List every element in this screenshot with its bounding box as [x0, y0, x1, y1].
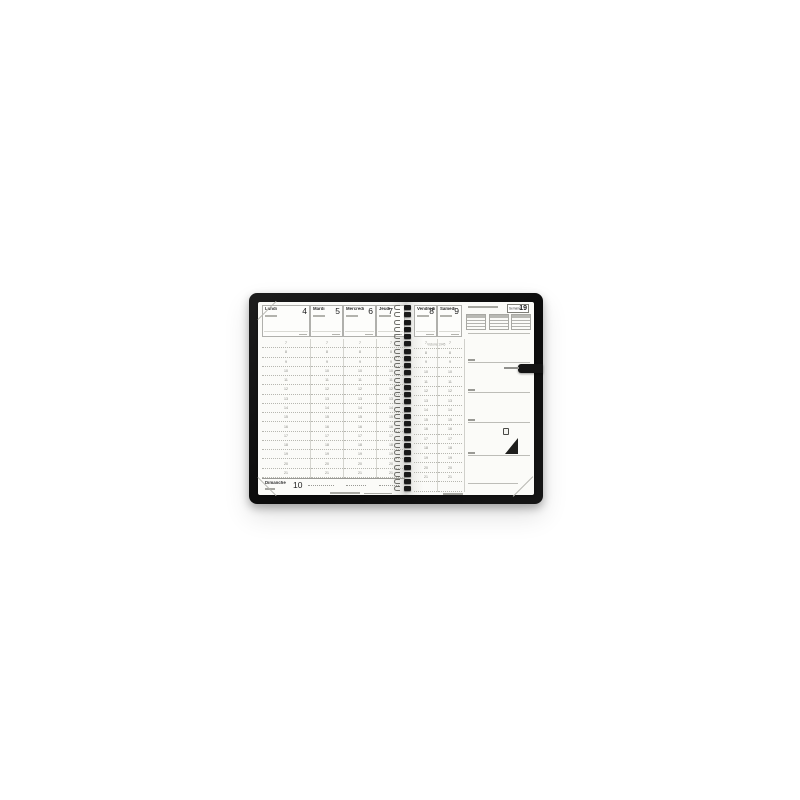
product-photo: Lundi 4 Mardi 5 Mercredi 6	[0, 0, 800, 800]
hour-label: 12	[284, 388, 288, 392]
hour-row: 20	[262, 459, 310, 468]
hour-label: 15	[325, 416, 329, 420]
hour-label: 11	[424, 380, 428, 384]
hour-row: 8	[344, 348, 376, 357]
spiral-wire-hook	[394, 465, 400, 470]
hour-label: 9	[449, 361, 451, 365]
spiral-loop	[404, 465, 411, 470]
hour-label: 12	[325, 388, 329, 392]
hour-row: 19	[311, 450, 343, 459]
hour-label: 9	[425, 361, 427, 365]
header-total-text	[332, 334, 340, 336]
notes-line	[468, 422, 530, 423]
hour-label: 18	[358, 443, 362, 447]
left-page: Lundi 4 Mardi 5 Mercredi 6	[258, 302, 405, 495]
hour-label: 8	[449, 351, 451, 355]
notes-section: Semaine 19	[466, 302, 532, 495]
hour-row: 16	[262, 422, 310, 431]
hour-label: 17	[325, 434, 329, 438]
sunday-row: Dimanche 10	[262, 478, 405, 492]
hour-row: 19	[438, 454, 462, 464]
day-header-saturday: Samedi 9	[437, 305, 462, 337]
hour-row: 8	[262, 348, 310, 357]
spiral-loop	[404, 399, 411, 404]
hour-label: 17	[358, 434, 362, 438]
spiral-wire-hook	[394, 312, 400, 317]
spiral-loop	[404, 312, 411, 317]
right-hour-grid: 7891011121314151617181920217891011121314…	[414, 339, 462, 492]
footer-text	[330, 492, 360, 494]
spiral-loop	[404, 392, 411, 397]
hour-label: 7	[326, 341, 328, 345]
hour-label: 13	[424, 399, 428, 403]
hour-label: 15	[424, 418, 428, 422]
bookmark-tail	[504, 367, 519, 369]
mini-calendar	[489, 314, 509, 330]
notes-label-text	[468, 419, 475, 421]
spiral-wire-hook	[394, 399, 400, 404]
spiral-wire-hook	[394, 428, 400, 433]
saint-name-text	[265, 315, 277, 317]
notes-label-text	[468, 389, 475, 391]
spiral-loop	[404, 479, 411, 484]
hour-label: 9	[285, 360, 287, 364]
day-date: 4	[302, 306, 307, 316]
hour-label: 19	[424, 456, 428, 460]
hour-row: 14	[344, 404, 376, 413]
hour-label: 10	[284, 369, 288, 373]
hour-row: 9	[311, 358, 343, 367]
hour-label: 20	[358, 462, 362, 466]
hour-row: 18	[262, 441, 310, 450]
hour-label: 14	[284, 406, 288, 410]
holiday-note: Victoire 1945	[416, 343, 457, 346]
hour-row: 17	[344, 432, 376, 441]
spiral-wire-hook	[394, 443, 400, 448]
spiral-wire-hook	[394, 356, 400, 361]
day-hour-column: 789101112131415161718192021	[343, 339, 376, 478]
spiral-wire-hook	[394, 392, 400, 397]
hour-row: 13	[344, 395, 376, 404]
notes-label-text	[468, 452, 475, 454]
hour-label: 16	[325, 425, 329, 429]
day-hour-column: 789101112131415161718192021	[310, 339, 343, 478]
hour-row: 16	[438, 425, 462, 435]
notes-line	[468, 333, 530, 334]
spiral-wire-hook	[394, 421, 400, 426]
hour-row: 20	[311, 459, 343, 468]
day-date: 10	[293, 480, 302, 490]
spiral-wire-hook	[394, 349, 400, 354]
spiral-binding	[392, 302, 418, 495]
spiral-wire-hook	[394, 486, 400, 491]
spiral-wire-hook	[394, 457, 400, 462]
open-pages: Lundi 4 Mardi 5 Mercredi 6	[258, 302, 534, 495]
spiral-loop	[404, 436, 411, 441]
spiral-wire-hook	[394, 385, 400, 390]
hour-row: 12	[344, 385, 376, 394]
hour-label: 12	[424, 389, 428, 393]
saint-name-text	[313, 315, 325, 317]
footer-text	[443, 493, 463, 495]
hour-label: 17	[424, 437, 428, 441]
hour-label: 21	[325, 471, 329, 475]
hour-row: 21	[344, 469, 376, 478]
hour-row: 13	[311, 395, 343, 404]
month-caption-text	[468, 306, 498, 308]
spiral-wire-hook	[394, 305, 400, 310]
spiral-wire-hook	[394, 407, 400, 412]
hour-label: 11	[358, 378, 362, 382]
sail-triangle	[505, 438, 518, 454]
hour-label: 17	[448, 437, 452, 441]
spiral-loop	[404, 320, 411, 325]
hour-row: 11	[311, 376, 343, 385]
day-header-tuesday: Mardi 5	[310, 305, 343, 337]
bookmark-tab	[518, 364, 543, 373]
hour-row: 15	[311, 413, 343, 422]
hour-row: 9	[262, 358, 310, 367]
spiral-loop	[404, 370, 411, 375]
header-total-text	[451, 334, 459, 336]
hour-row: 11	[262, 376, 310, 385]
hour-label: 15	[358, 416, 362, 420]
hour-label: 19	[284, 453, 288, 457]
spiral-loop	[404, 327, 411, 332]
spiral-loop	[404, 472, 411, 477]
spiral-wire-hook	[394, 378, 400, 383]
spiral-wire-hook	[394, 414, 400, 419]
spiral-loop	[404, 305, 411, 310]
hour-label: 14	[448, 408, 452, 412]
spiral-loop	[404, 349, 411, 354]
hour-label: 15	[448, 418, 452, 422]
hour-row: 17	[262, 432, 310, 441]
spiral-wire-hook	[394, 370, 400, 375]
hour-row: 9	[438, 358, 462, 368]
spiral-loop	[404, 407, 411, 412]
spiral-wire-hook	[394, 436, 400, 441]
day-hour-column: 789101112131415161718192021	[437, 339, 462, 492]
day-header-wednesday: Mercredi 6	[343, 305, 376, 337]
header-rule	[345, 331, 374, 332]
hour-label: 15	[284, 416, 288, 420]
hour-label: 18	[325, 443, 329, 447]
hour-row: 17	[311, 432, 343, 441]
hour-row: 18	[438, 444, 462, 454]
spiral-wire-hook	[394, 320, 400, 325]
spiral-loop	[404, 356, 411, 361]
spiral-loop	[404, 341, 411, 346]
spiral-loop	[404, 385, 411, 390]
hour-row: 9	[344, 358, 376, 367]
week-number: 19	[519, 305, 527, 312]
hour-row: 21	[438, 473, 462, 483]
hour-label: 7	[359, 341, 361, 345]
hour-label: 19	[325, 453, 329, 457]
day-name: Dimanche	[265, 481, 286, 485]
hour-row: 21	[311, 469, 343, 478]
hour-row: 15	[262, 413, 310, 422]
header-rule	[312, 331, 341, 332]
hour-row: 12	[311, 385, 343, 394]
hour-label: 8	[285, 351, 287, 355]
ruled-line	[346, 485, 366, 486]
week-badge: Semaine 19	[507, 304, 529, 313]
hour-row: 13	[438, 396, 462, 406]
hour-row: 7	[344, 339, 376, 348]
hour-row: 7	[262, 339, 310, 348]
notes-label-text	[468, 359, 475, 361]
hour-row: 16	[344, 422, 376, 431]
hour-label: 21	[358, 471, 362, 475]
hour-label: 20	[424, 466, 428, 470]
hour-label: 10	[448, 370, 452, 374]
hour-label: 20	[284, 462, 288, 466]
notes-line	[468, 392, 530, 393]
hour-label: 16	[358, 425, 362, 429]
day-name: Mercredi	[346, 307, 364, 311]
hour-label: 12	[358, 388, 362, 392]
hour-label: 11	[448, 380, 452, 384]
hour-row: 14	[438, 406, 462, 416]
spiral-loop	[404, 414, 411, 419]
hour-label: 17	[284, 434, 288, 438]
hour-label: 19	[448, 456, 452, 460]
hour-row: 20	[344, 459, 376, 468]
day-date: 5	[335, 306, 340, 316]
hour-row: 18	[344, 441, 376, 450]
hour-row: 10	[344, 367, 376, 376]
hour-row: 10	[311, 367, 343, 376]
hour-label: 11	[284, 378, 288, 382]
notes-line	[468, 483, 518, 484]
hour-label: 14	[325, 406, 329, 410]
spiral-loop	[404, 363, 411, 368]
hour-label: 20	[448, 466, 452, 470]
sailboat-icon	[501, 428, 521, 456]
hour-label: 8	[425, 351, 427, 355]
column-separator	[464, 339, 465, 492]
hour-label: 10	[424, 370, 428, 374]
hour-label: 16	[424, 428, 428, 432]
day-header-monday: Lundi 4	[262, 305, 310, 337]
left-hour-grid: 7891011121314151617181920217891011121314…	[262, 339, 405, 478]
spiral-loop	[404, 334, 411, 339]
day-date: 9	[454, 306, 459, 316]
hour-label: 13	[325, 397, 329, 401]
hour-label: 10	[358, 369, 362, 373]
hour-label: 9	[326, 360, 328, 364]
hour-row	[438, 482, 462, 492]
header-rule	[416, 331, 435, 332]
spiral-wire-hook	[394, 327, 400, 332]
header-total-text	[299, 334, 307, 336]
spiral-wire-hook	[394, 341, 400, 346]
footer-text	[364, 493, 392, 495]
day-name: Samedi	[440, 307, 455, 311]
hour-row: 19	[344, 450, 376, 459]
hour-row: 12	[262, 385, 310, 394]
hour-row: 14	[311, 404, 343, 413]
hour-label: 18	[448, 447, 452, 451]
spiral-loop	[404, 486, 411, 491]
ruled-line	[308, 485, 334, 486]
spiral-loop	[404, 428, 411, 433]
hour-label: 21	[424, 475, 428, 479]
spiral-wire-hook	[394, 472, 400, 477]
hour-row: 8	[311, 348, 343, 357]
hour-row: 8	[438, 349, 462, 359]
hour-label: 14	[424, 408, 428, 412]
header-total-text	[426, 334, 434, 336]
spiral-loop	[404, 457, 411, 462]
spiral-wire-hook	[394, 450, 400, 455]
planner-cover: Lundi 4 Mardi 5 Mercredi 6	[249, 293, 543, 504]
mini-calendar	[511, 314, 531, 330]
hour-label: 14	[358, 406, 362, 410]
hour-row: 15	[344, 413, 376, 422]
hour-label: 21	[448, 475, 452, 479]
hour-label: 20	[325, 462, 329, 466]
hour-label: 13	[358, 397, 362, 401]
hour-row: 18	[311, 441, 343, 450]
hour-label: 8	[359, 351, 361, 355]
hour-label: 8	[326, 351, 328, 355]
hour-label: 13	[448, 399, 452, 403]
spiral-loop	[404, 443, 411, 448]
notes-line	[468, 362, 530, 363]
hour-label: 19	[358, 453, 362, 457]
spiral-loop	[404, 421, 411, 426]
hour-label: 16	[284, 425, 288, 429]
spiral-loop	[404, 378, 411, 383]
day-date: 8	[429, 306, 434, 316]
day-name: Mardi	[313, 307, 325, 311]
spiral-wire-hook	[394, 479, 400, 484]
hour-row: 19	[262, 450, 310, 459]
hour-label: 9	[359, 360, 361, 364]
header-rule	[264, 331, 308, 332]
spiral-loop	[404, 450, 411, 455]
spiral-wire-hook	[394, 334, 400, 339]
hour-label: 11	[325, 378, 329, 382]
header-total-text	[365, 334, 373, 336]
hour-row: 21	[262, 469, 310, 478]
sail-flag	[503, 428, 509, 435]
hour-row: 11	[438, 377, 462, 387]
mini-calendar	[466, 314, 486, 330]
hour-row: 16	[311, 422, 343, 431]
hour-label: 16	[448, 428, 452, 432]
day-hour-column: 789101112131415161718192021	[262, 339, 310, 478]
hour-label: 10	[325, 369, 329, 373]
hour-row: 10	[438, 368, 462, 378]
spiral-wire-hook	[394, 363, 400, 368]
hour-label: 18	[284, 443, 288, 447]
hour-label: 13	[284, 397, 288, 401]
hour-row: 15	[438, 416, 462, 426]
day-date: 6	[368, 306, 373, 316]
hour-label: 7	[285, 341, 287, 345]
saint-name-text	[417, 315, 429, 317]
hour-label: 21	[284, 471, 288, 475]
right-page: Vendredi 8 Samedi 9 78910111213141516171…	[413, 302, 534, 495]
hour-label: 12	[448, 389, 452, 393]
hour-row: 14	[262, 404, 310, 413]
hour-label: 18	[424, 447, 428, 451]
saint-name-text	[346, 315, 358, 317]
hour-row: 12	[438, 387, 462, 397]
hour-row: 7	[311, 339, 343, 348]
saint-name-text	[440, 315, 452, 317]
header-rule	[439, 331, 460, 332]
hour-row: 10	[262, 367, 310, 376]
hour-row: 17	[438, 435, 462, 445]
hour-row: 13	[262, 395, 310, 404]
hour-row: 11	[344, 376, 376, 385]
hour-row: 20	[438, 463, 462, 473]
